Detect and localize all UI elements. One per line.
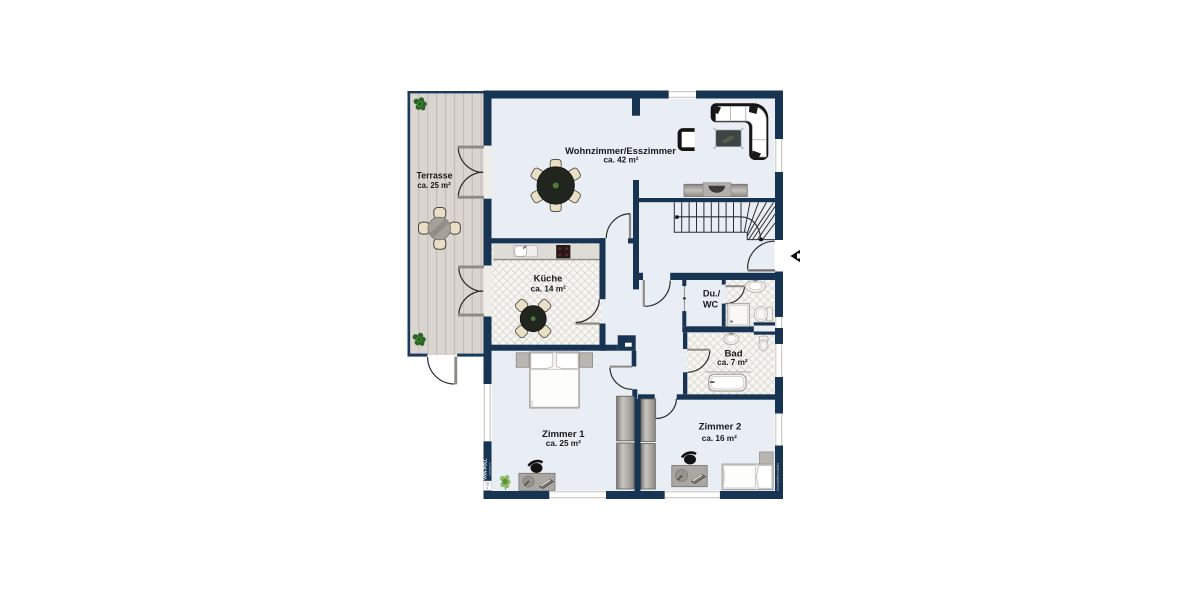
svg-text:Wohnzimmer/Esszimmer: Wohnzimmer/Esszimmer — [565, 145, 676, 156]
svg-text:ca. 14 m²: ca. 14 m² — [531, 285, 566, 294]
svg-text:Terrasse: Terrasse — [416, 170, 452, 180]
svg-text:ca. 25 m²: ca. 25 m² — [417, 181, 451, 190]
svg-text:IMMOBILIEN: IMMOBILIEN — [489, 462, 491, 475]
svg-text:Küche: Küche — [534, 273, 563, 284]
svg-text:ca. 16 m²: ca. 16 m² — [702, 434, 737, 443]
svg-text:WC: WC — [703, 299, 719, 309]
svg-text:Zimmer 2: Zimmer 2 — [699, 422, 742, 433]
svg-text:VON POLL: VON POLL — [482, 458, 487, 480]
svg-text:ca. 42 m²: ca. 42 m² — [603, 155, 638, 164]
svg-text:Du./: Du./ — [703, 288, 721, 298]
svg-text:Immobilienmakler: Immobilienmakler — [776, 462, 780, 491]
svg-text:ca. 25 m²: ca. 25 m² — [546, 439, 581, 448]
svg-text:ca. 7 m²: ca. 7 m² — [717, 358, 748, 367]
